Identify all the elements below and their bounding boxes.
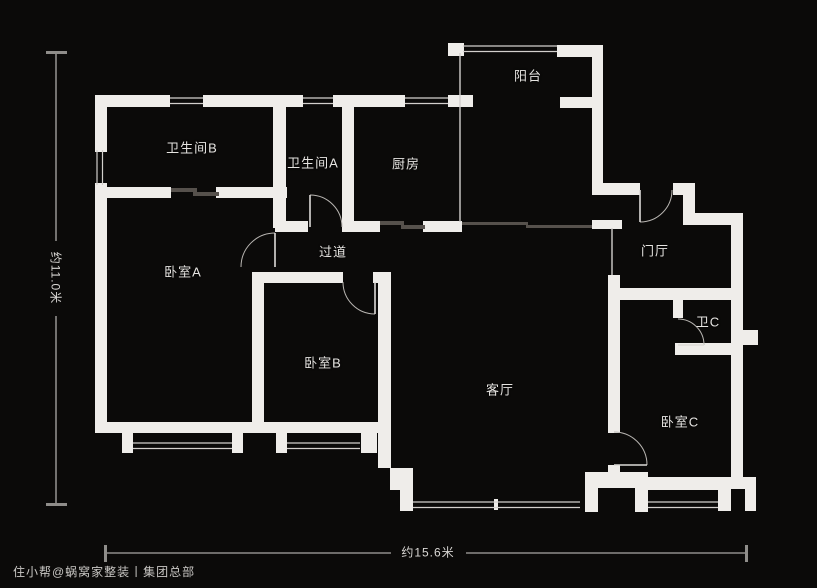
wall-segment bbox=[95, 422, 390, 433]
floorplan-canvas: 阳台卫生间B卫生间A厨房门厅卧室A过道卫C卧室B客厅卧室C 约11.0米 约15… bbox=[0, 0, 817, 588]
room-label-bathroom-c: 卫C bbox=[696, 312, 720, 331]
wall-segment bbox=[592, 183, 640, 195]
floorplan-drawing bbox=[0, 0, 817, 588]
wall-segment bbox=[203, 95, 303, 107]
wall-segment bbox=[252, 272, 264, 433]
door-swing-arc bbox=[310, 195, 342, 227]
dimension-left-label: 约11.0米 bbox=[48, 252, 65, 304]
door-swing-arc bbox=[640, 190, 672, 222]
room-label-bedroom-b: 卧室B bbox=[304, 353, 342, 372]
wall-segment bbox=[400, 490, 413, 511]
room-label-living-room: 客厅 bbox=[486, 380, 514, 399]
dimension-line-bottom-cap bbox=[104, 545, 107, 562]
dimension-line-bottom-cap bbox=[745, 545, 748, 562]
door-swing-arc bbox=[614, 432, 647, 465]
wall-segment bbox=[695, 213, 743, 225]
wall-segment bbox=[592, 45, 603, 187]
room-label-bedroom-c: 卧室C bbox=[661, 412, 699, 431]
wall-segment bbox=[642, 477, 718, 490]
wall-segment bbox=[275, 221, 308, 232]
wall-segment bbox=[673, 300, 683, 318]
wall-segment bbox=[342, 95, 354, 232]
sliding-door-panel bbox=[401, 225, 425, 229]
sliding-door-panel bbox=[171, 188, 197, 192]
sliding-door-panel bbox=[380, 221, 404, 225]
room-label-bathroom-a: 卫生间A bbox=[287, 153, 339, 172]
wall-segment bbox=[361, 433, 377, 453]
room-label-foyer: 门厅 bbox=[641, 241, 669, 260]
sliding-door-panel bbox=[193, 192, 219, 196]
door-swing-arc bbox=[241, 233, 275, 267]
wall-segment bbox=[560, 97, 592, 108]
wall-segment bbox=[673, 183, 695, 195]
wall-segment bbox=[683, 195, 695, 225]
wall-segment bbox=[276, 433, 287, 453]
wall-segment bbox=[95, 183, 107, 433]
watermark-text: 住小帮@蜗窝家整装丨集团总部 bbox=[13, 563, 195, 580]
wall-segment bbox=[743, 330, 758, 345]
wall-segment bbox=[122, 433, 133, 453]
wall-notch bbox=[731, 489, 745, 511]
sliding-door-panel bbox=[462, 222, 528, 225]
room-label-bathroom-b: 卫生间B bbox=[166, 138, 218, 157]
wall-segment bbox=[592, 220, 622, 229]
wall-segment bbox=[390, 468, 413, 490]
room-label-corridor: 过道 bbox=[319, 242, 347, 261]
wall-segment bbox=[494, 499, 498, 510]
room-label-balcony: 阳台 bbox=[514, 66, 542, 85]
wall-segment bbox=[95, 95, 107, 152]
wall-segment bbox=[611, 288, 735, 300]
dimension-line-left-cap bbox=[46, 503, 67, 506]
wall-segment bbox=[448, 43, 464, 56]
wall-segment bbox=[258, 272, 343, 283]
wall-segment bbox=[423, 221, 462, 232]
room-label-kitchen: 厨房 bbox=[392, 154, 420, 173]
dimension-bottom-label: 约15.6米 bbox=[401, 544, 454, 561]
wall-segment bbox=[232, 433, 243, 453]
wall-segment bbox=[95, 187, 171, 198]
door-swing-arc bbox=[343, 282, 375, 314]
wall-segment bbox=[273, 95, 286, 228]
dimension-line-left-cap bbox=[46, 51, 67, 54]
wall-notch bbox=[598, 488, 635, 512]
sliding-door-panel bbox=[526, 225, 592, 228]
wall-segment bbox=[342, 221, 380, 232]
room-label-bedroom-a: 卧室A bbox=[164, 262, 202, 281]
wall-segment bbox=[378, 272, 391, 468]
wall-segment bbox=[608, 275, 620, 433]
